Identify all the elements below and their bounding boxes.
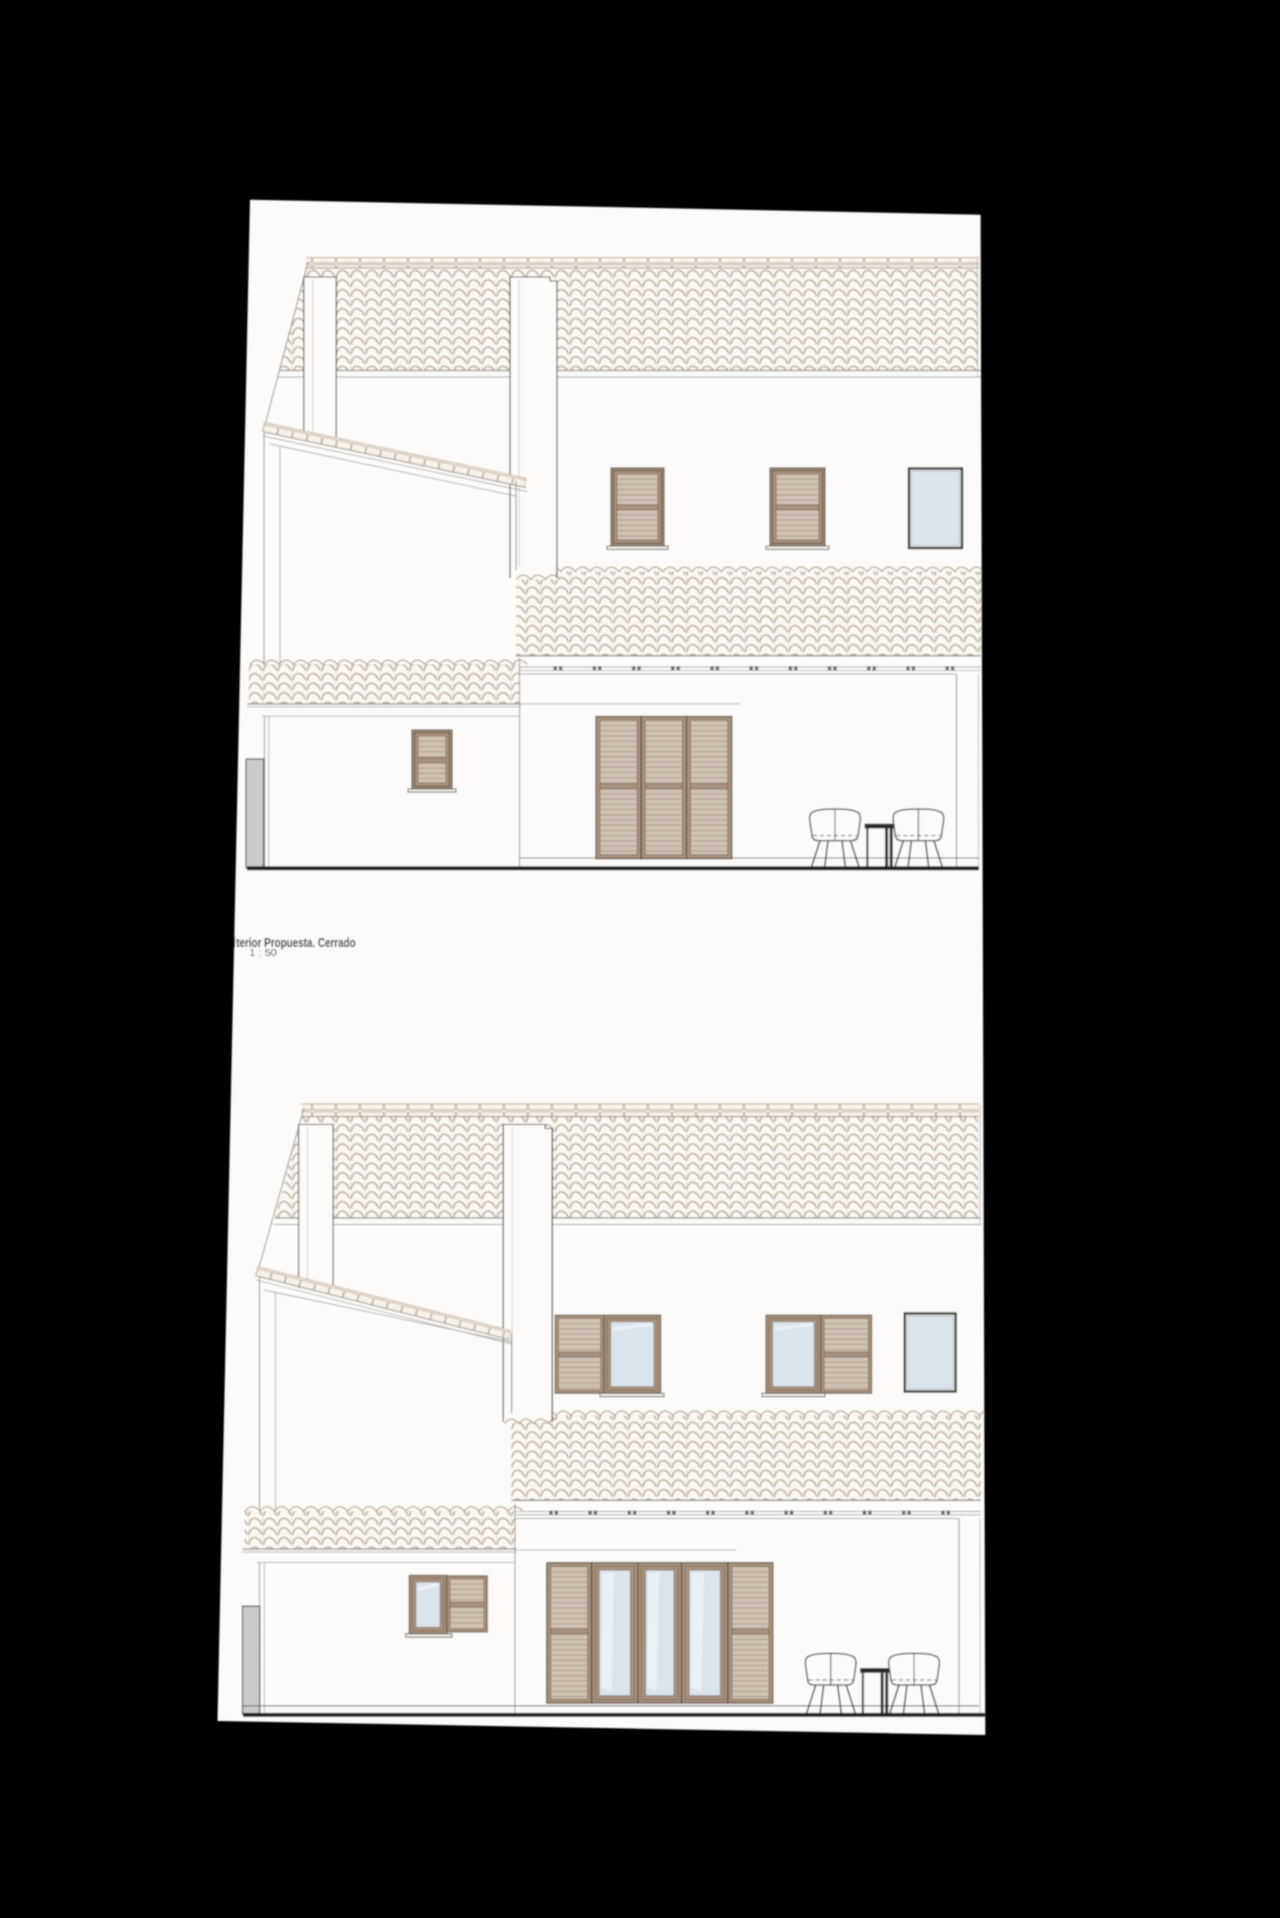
- svg-text:1 : 50: 1 : 50: [249, 948, 277, 959]
